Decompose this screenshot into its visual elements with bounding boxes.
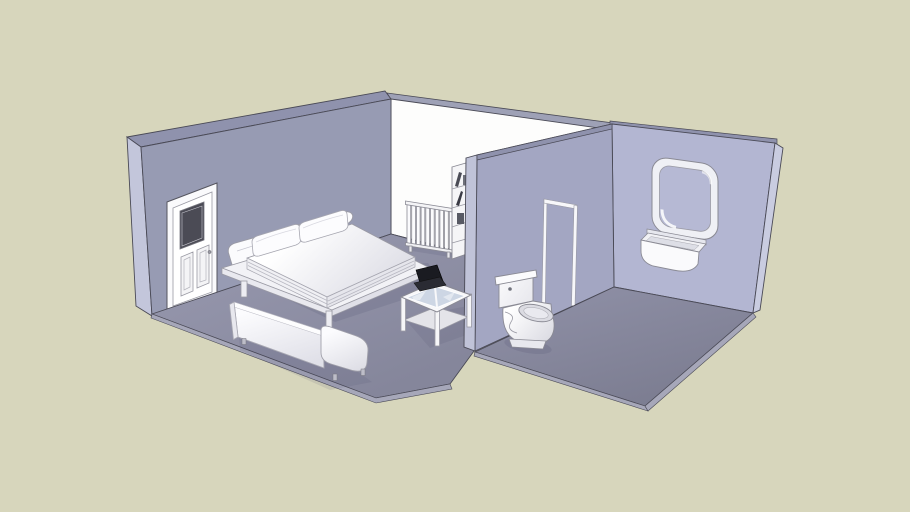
radiator-fin — [445, 208, 449, 250]
sofa-foot — [361, 369, 365, 376]
radiator-fin — [426, 205, 430, 247]
bed-leg — [241, 281, 247, 297]
radiator-foot — [447, 252, 450, 258]
sofa-foot — [242, 339, 246, 345]
mirror — [652, 156, 718, 241]
table-leg — [467, 294, 472, 327]
radiator-fin — [431, 206, 435, 248]
radiator-foot — [409, 246, 412, 252]
radiator-fin — [440, 207, 444, 249]
model-viewport[interactable] — [0, 0, 910, 512]
table-leg — [435, 311, 440, 346]
radiator-fin — [407, 202, 411, 244]
table-leg — [401, 297, 406, 331]
sofa-foot — [333, 374, 337, 381]
bed-leg — [326, 311, 332, 328]
toilet-base — [509, 339, 546, 349]
radiator-fin — [412, 203, 416, 245]
door — [167, 183, 217, 312]
scene-canvas — [0, 0, 910, 512]
radiator-fin — [421, 204, 425, 246]
radiator-fin — [416, 204, 420, 246]
book — [457, 213, 464, 224]
door-knob — [208, 250, 211, 253]
toilet-flush-button — [508, 287, 512, 291]
radiator-fin — [435, 207, 439, 249]
